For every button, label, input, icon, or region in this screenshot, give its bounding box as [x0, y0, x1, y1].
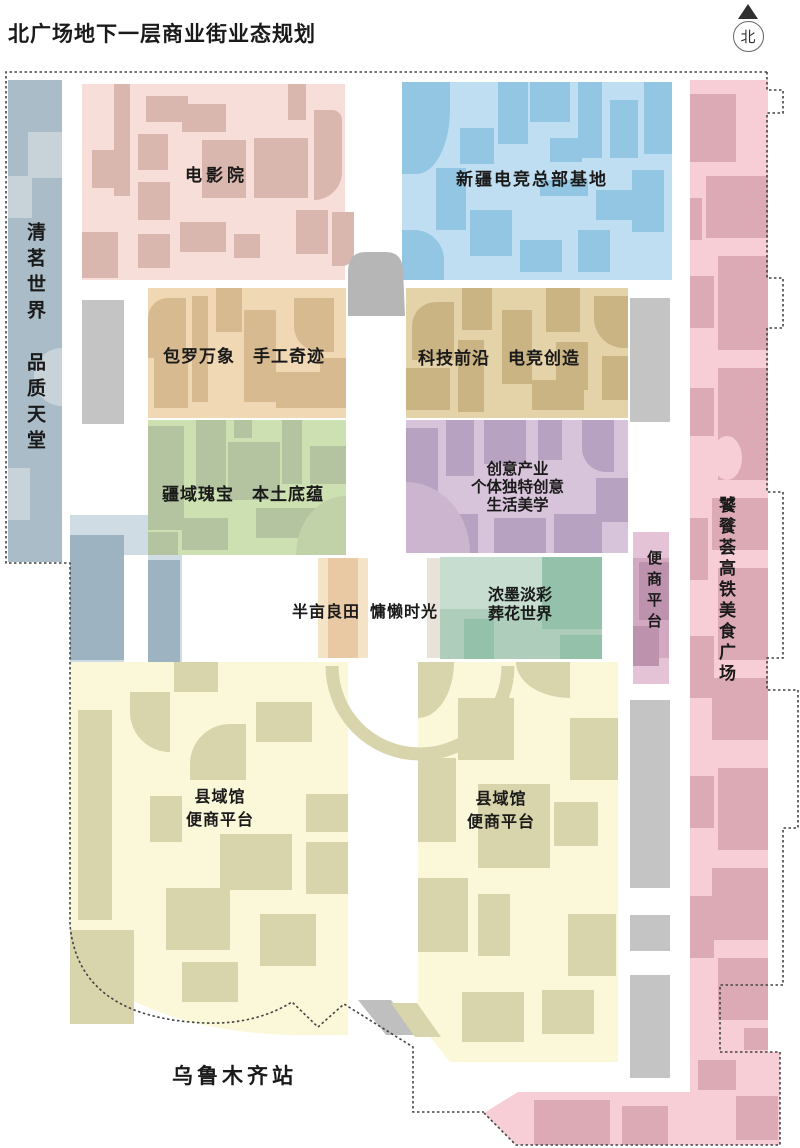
building-block: [310, 446, 346, 484]
building-block: [470, 210, 512, 256]
building-block: [586, 577, 602, 607]
label-leisure-farm: 半亩良田慵懒时光: [292, 598, 438, 622]
page-title: 北广场地下一层商业街业态规划: [8, 18, 316, 48]
building-block: [460, 128, 494, 164]
building-block: [578, 230, 610, 272]
building-block: [462, 288, 492, 330]
building-block: [560, 635, 602, 659]
north-arrow-icon: [738, 4, 758, 19]
building-block: [520, 240, 562, 272]
building-block: [70, 535, 124, 660]
north-compass: 北: [730, 4, 766, 52]
building-block: [462, 992, 524, 1042]
building-block: [402, 82, 450, 174]
building-block: [314, 110, 342, 200]
corridor-pillar: [82, 300, 124, 424]
building-block: [718, 958, 768, 1020]
building-block: [516, 662, 570, 698]
building-block: [596, 190, 634, 220]
label-handicraft: 包罗万象手工奇迹: [163, 342, 325, 367]
building-block: [260, 914, 316, 966]
zone-county-hall-right: [418, 662, 618, 1062]
building-block: [288, 84, 306, 120]
building-block: [594, 296, 628, 348]
building-block: [744, 1028, 768, 1050]
building-block: [464, 619, 494, 659]
building-block: [234, 234, 260, 258]
building-block: [92, 150, 128, 188]
building-block: [216, 288, 242, 332]
building-block: [332, 212, 354, 266]
north-label: 北: [740, 26, 755, 47]
building-block: [70, 930, 134, 1024]
building-block: [690, 198, 702, 240]
building-block: [546, 288, 580, 332]
building-block: [418, 662, 454, 718]
building-block: [418, 878, 468, 952]
building-block: [148, 426, 184, 530]
building-block: [78, 710, 112, 920]
building-block: [690, 518, 708, 580]
building-block: [138, 182, 170, 220]
building-block: [712, 436, 742, 480]
station-label: 乌鲁木齐站: [172, 1060, 297, 1090]
building-block: [82, 232, 118, 278]
building-block: [532, 380, 584, 410]
building-block: [148, 532, 178, 555]
building-block: [478, 894, 510, 956]
building-block: [182, 962, 238, 1002]
north-circle: 北: [733, 21, 764, 52]
label-tech-esports: 科技前沿电竞创造: [418, 344, 580, 369]
building-block: [182, 104, 226, 132]
building-block: [530, 82, 570, 122]
building-block: [578, 82, 602, 158]
ramp-gray: [358, 1000, 419, 1035]
building-block: [190, 724, 246, 780]
label-cinema: 电影院: [185, 161, 248, 186]
corridor-pillar: [630, 915, 670, 951]
building-block: [234, 420, 252, 438]
corridor-pillar: [630, 298, 670, 422]
building-block: [538, 420, 562, 460]
building-block: [712, 868, 768, 940]
building-block: [180, 222, 226, 252]
building-block: [690, 636, 714, 698]
label-ink-art: 浓墨淡彩 葬花世界: [470, 586, 570, 624]
building-block: [166, 888, 230, 950]
label-esports: 新疆电竞总部基地: [456, 165, 608, 190]
building-block: [602, 356, 628, 400]
label-county-left: 县域馆 便商平台: [150, 786, 290, 832]
label-creative: 创意产业 个体独特创意 生活美学: [430, 461, 605, 515]
building-block: [542, 990, 594, 1034]
building-block: [138, 134, 168, 170]
label-convenience-strip: 便商平台: [643, 550, 664, 670]
label-local-heritage: 疆域瑰宝本土底蕴: [162, 480, 324, 505]
zone-county-hall-left: [70, 662, 348, 1035]
building-block: [498, 82, 528, 144]
building-block: [28, 132, 62, 178]
building-block: [706, 176, 768, 238]
building-block: [130, 692, 170, 752]
building-block: [568, 914, 616, 976]
building-block: [610, 100, 638, 158]
building-block: [174, 662, 218, 692]
building-block: [282, 420, 302, 484]
building-block: [148, 560, 180, 662]
building-block: [554, 514, 602, 553]
building-block: [124, 555, 148, 662]
building-block: [690, 896, 714, 958]
building-block: [220, 834, 292, 890]
label-tea-world: 清茗世界品质天堂: [21, 222, 48, 492]
escalator-block: [348, 252, 405, 316]
building-block: [8, 176, 32, 218]
building-block: [690, 276, 714, 328]
building-block: [494, 518, 546, 553]
building-block: [718, 768, 768, 850]
building-block: [690, 776, 714, 828]
floor-plan-page: 北广场地下一层商业街业态规划 北: [0, 0, 800, 1148]
building-block: [256, 702, 312, 742]
label-food-plaza: 饕餮荟高铁美食广场: [713, 496, 738, 696]
building-block: [138, 234, 170, 268]
building-block: [458, 698, 514, 760]
building-block: [632, 170, 664, 232]
label-county-right: 县域馆 便商平台: [431, 788, 571, 834]
building-block: [406, 368, 450, 410]
building-block: [254, 138, 308, 198]
corridor-pillar: [630, 975, 670, 1078]
building-block: [690, 94, 736, 162]
building-block: [182, 518, 228, 550]
building-block: [690, 388, 714, 436]
building-block: [570, 718, 618, 780]
building-block: [718, 256, 768, 350]
corridor-pillar: [630, 700, 670, 888]
building-block: [306, 794, 348, 832]
building-block: [402, 230, 444, 280]
building-block: [644, 82, 672, 154]
building-block: [296, 210, 328, 254]
building-block: [306, 842, 348, 894]
building-block: [484, 420, 526, 464]
